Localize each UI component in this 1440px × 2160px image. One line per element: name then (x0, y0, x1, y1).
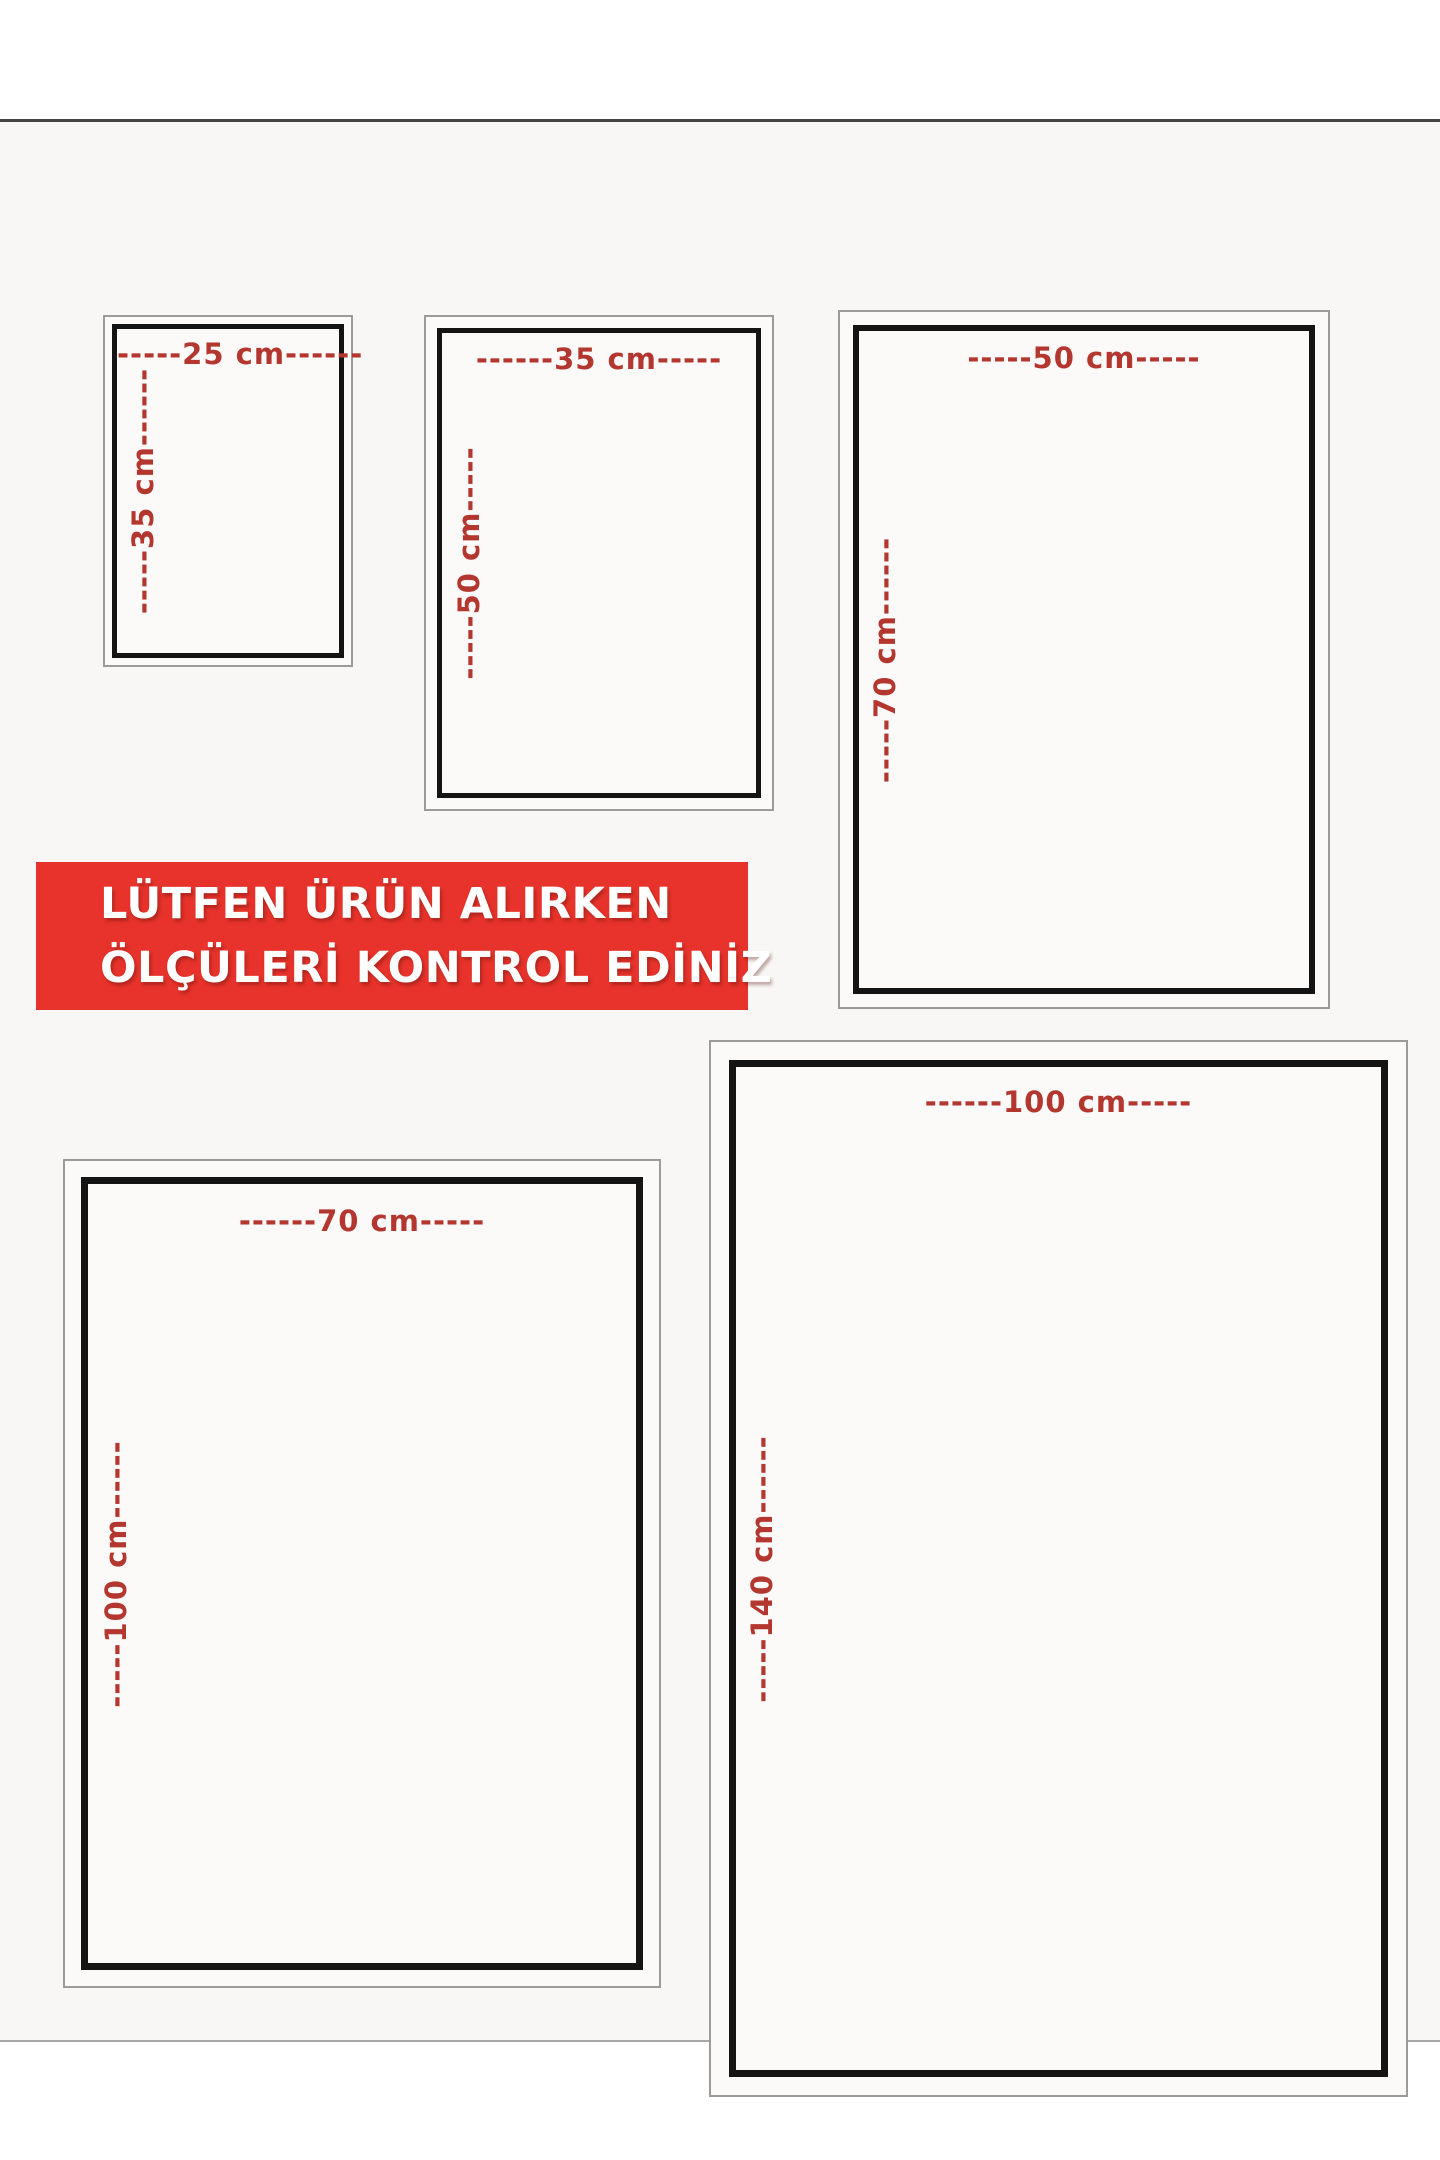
size-box-25x35: -----25 cm------ -----35 cm------ (103, 315, 353, 667)
notice-banner-line1: LÜTFEN ÜRÜN ALIRKEN (100, 872, 748, 936)
width-label-35cm: ------35 cm----- (442, 342, 756, 376)
width-label-50cm: -----50 cm----- (859, 341, 1309, 375)
size-box-50x70: -----50 cm----- -----70 cm------ (838, 310, 1330, 1009)
size-guide-page: { "notice_banner": { "line1": "LÜTFEN ÜR… (0, 0, 1440, 2160)
height-label-100cm: -----100 cm------ (99, 1440, 133, 1707)
size-box-70x100-frame: ------70 cm----- -----100 cm------ (81, 1177, 643, 1970)
size-box-100x140-frame: ------100 cm----- -----140 cm------ (729, 1060, 1388, 2077)
height-label-70cm: -----70 cm------ (868, 536, 902, 782)
width-label-25cm: -----25 cm------ (117, 337, 339, 371)
notice-banner: LÜTFEN ÜRÜN ALIRKEN ÖLÇÜLERİ KONTROL EDİ… (36, 862, 748, 1010)
sheet-background: -----25 cm------ -----35 cm------ ------… (0, 119, 1440, 2042)
width-label-70cm: ------70 cm----- (88, 1204, 636, 1238)
size-box-35x50-frame: ------35 cm----- -----50 cm----- (437, 328, 761, 798)
size-box-35x50: ------35 cm----- -----50 cm----- (424, 315, 774, 811)
size-box-25x35-frame: -----25 cm------ -----35 cm------ (112, 324, 344, 658)
size-box-50x70-frame: -----50 cm----- -----70 cm------ (853, 325, 1315, 994)
width-label-100cm: ------100 cm----- (736, 1085, 1381, 1119)
size-box-70x100: ------70 cm----- -----100 cm------ (63, 1159, 661, 1988)
notice-banner-line2: ÖLÇÜLERİ KONTROL EDİNİZ (100, 936, 748, 1000)
height-label-140cm: -----140 cm------ (745, 1435, 779, 1702)
size-box-100x140: ------100 cm----- -----140 cm------ (709, 1040, 1408, 2097)
height-label-50cm: -----50 cm----- (452, 446, 486, 679)
height-label-35cm: -----35 cm------ (126, 368, 160, 614)
